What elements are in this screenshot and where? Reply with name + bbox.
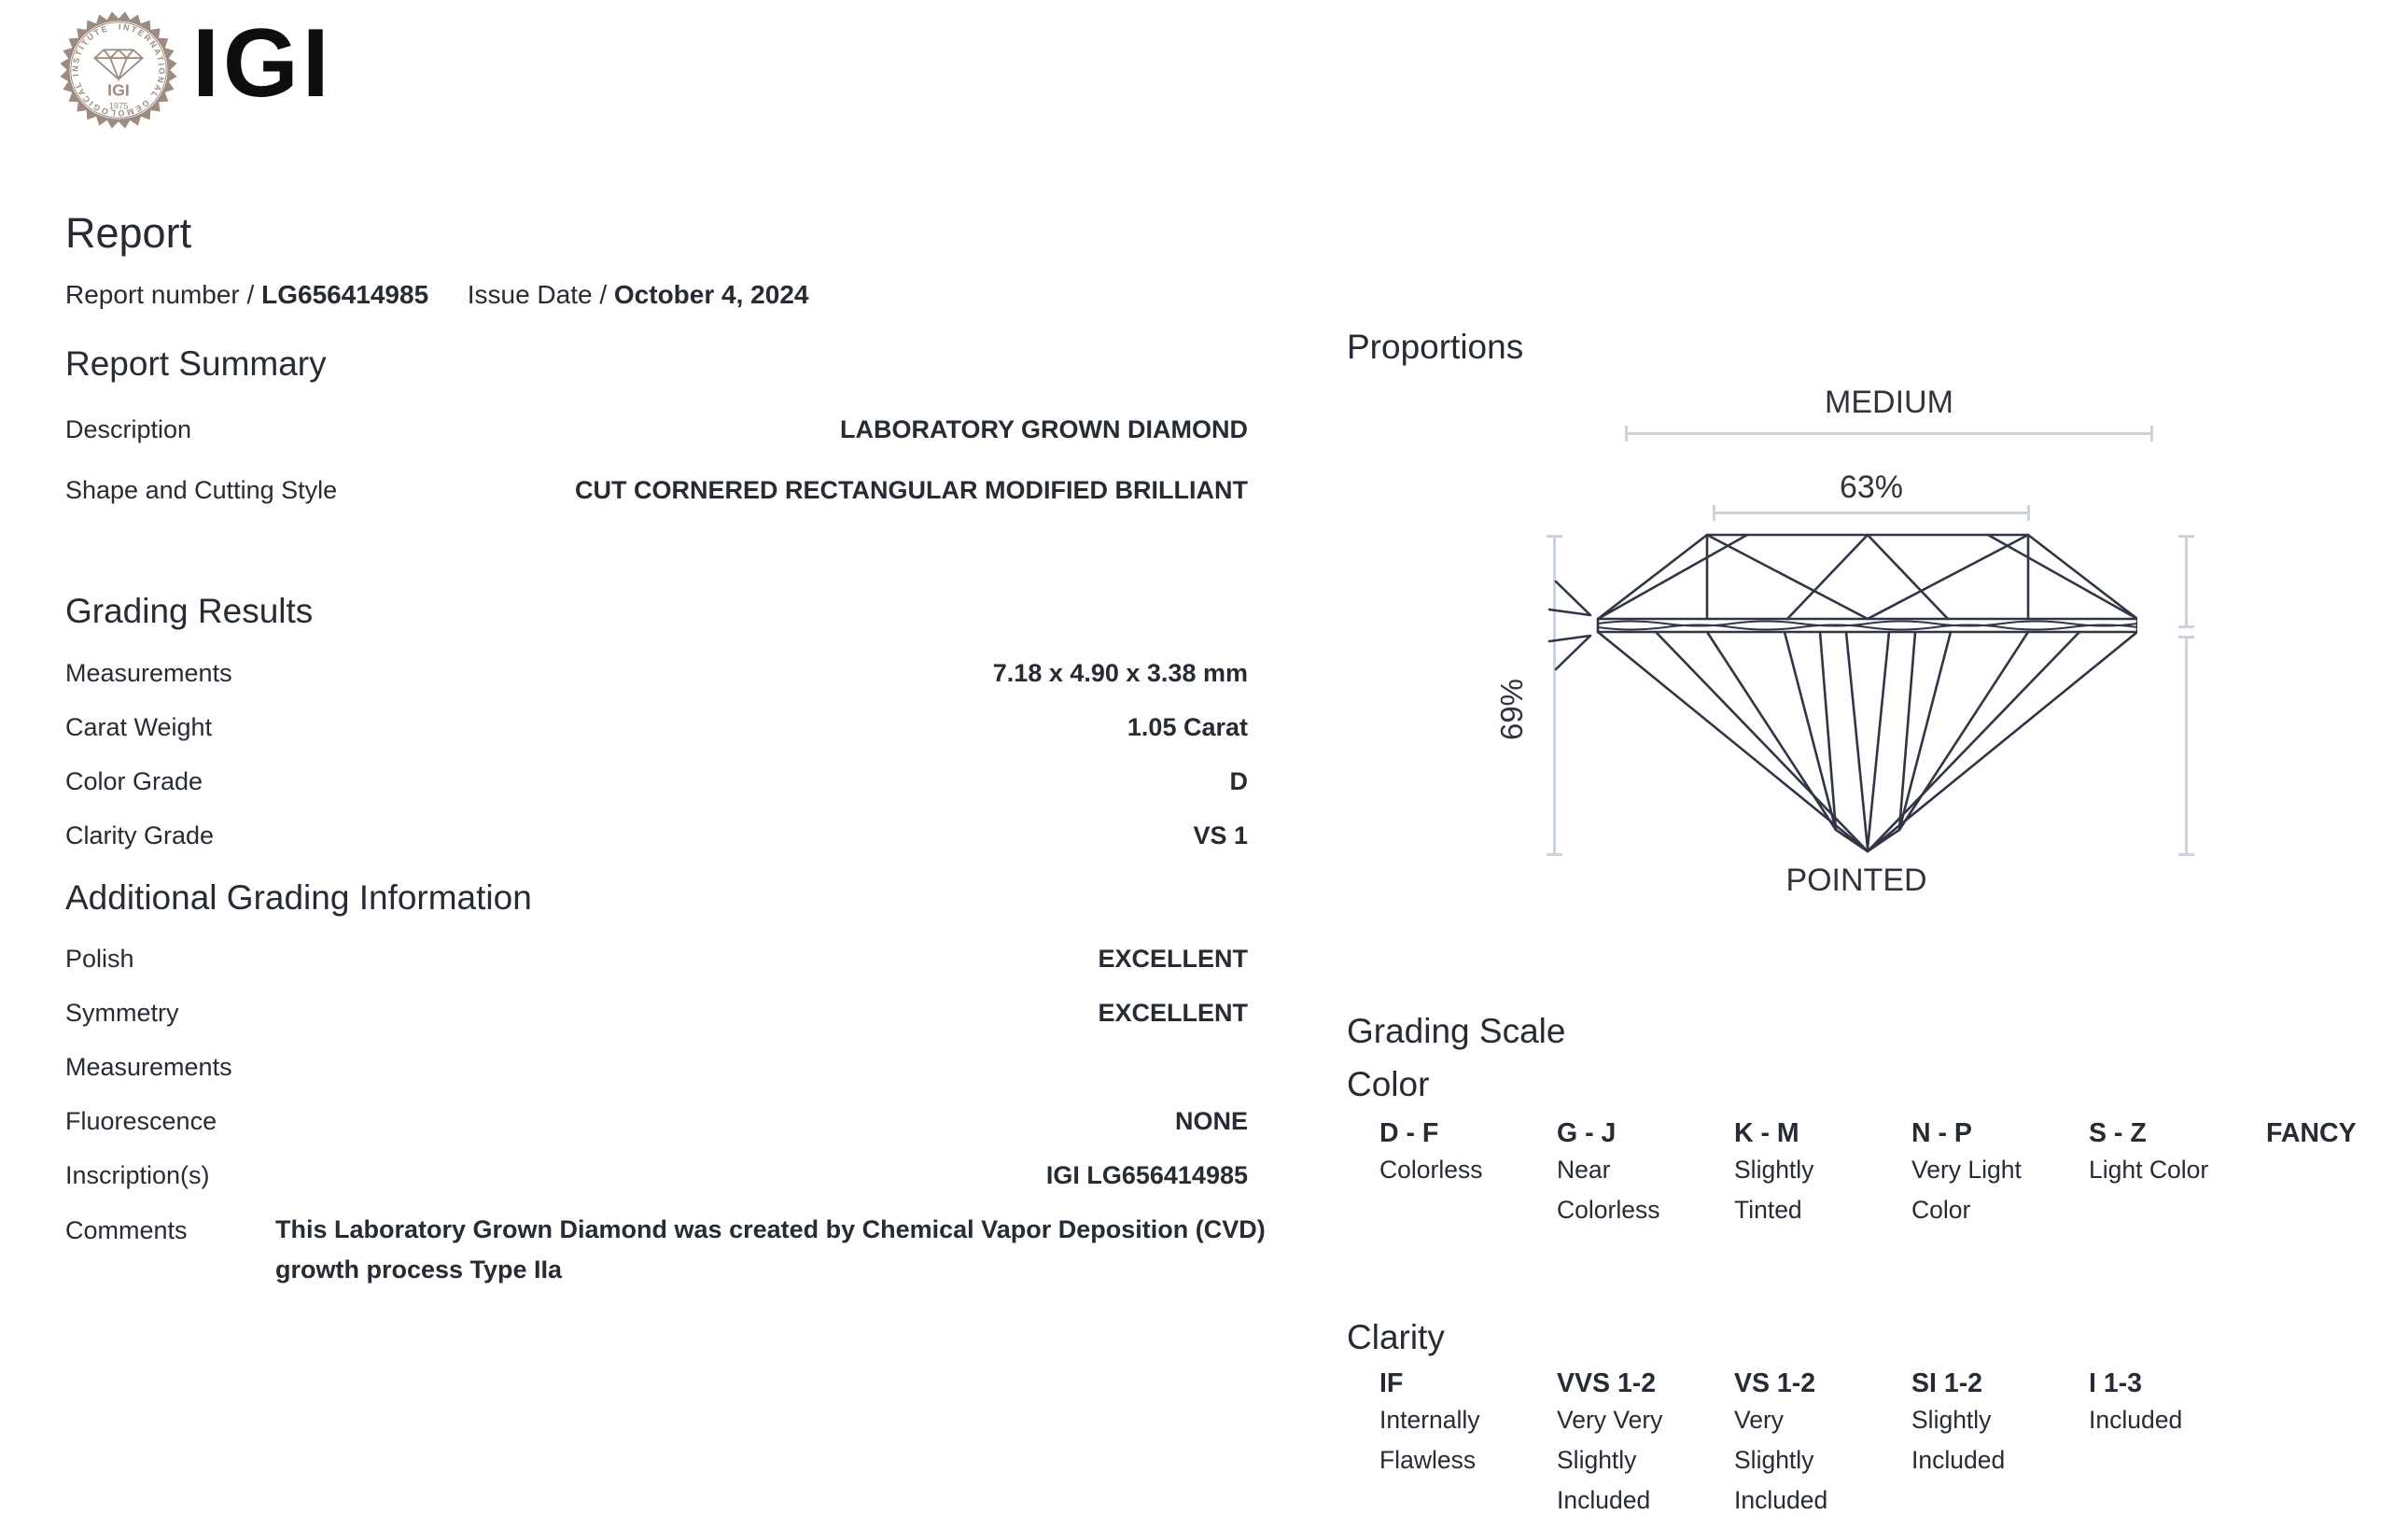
additional-row-fluorescence: Fluorescence NONE bbox=[65, 1104, 1248, 1138]
report-summary-heading: Report Summary bbox=[65, 344, 327, 385]
color-scale-item: G - J Near Colorless bbox=[1557, 1118, 1734, 1230]
page-title: Report bbox=[65, 209, 191, 258]
clarity-scale-grid: IF Internally Flawless VVS 1-2 Very Very… bbox=[1379, 1368, 2266, 1521]
clarity-scale-item: SI 1-2 Slightly Included bbox=[1911, 1368, 2089, 1521]
svg-text:IGI: IGI bbox=[107, 81, 130, 100]
color-scale-item: K - M Slightly Tinted bbox=[1734, 1118, 1911, 1230]
color-scale-item: S - Z Light Color bbox=[2089, 1118, 2266, 1230]
clarity-scale-item: VS 1-2 Very Slightly Included bbox=[1734, 1368, 1911, 1521]
report-meta: Report number / LG656414985 Issue Date /… bbox=[65, 280, 808, 310]
grading-results-heading: Grading Results bbox=[65, 591, 313, 632]
color-scale-grid: D - F Colorless G - J Near Colorless K -… bbox=[1379, 1118, 2408, 1230]
results-row-carat: Carat Weight 1.05 Carat bbox=[65, 710, 1248, 744]
culet-label: POINTED bbox=[1716, 863, 1996, 899]
girdle-measure-line bbox=[1625, 432, 2153, 435]
additional-row-inscription: Inscription(s) IGI LG656414985 bbox=[65, 1158, 1248, 1192]
proportions-heading: Proportions bbox=[1347, 327, 1523, 368]
svg-text:1975: 1975 bbox=[109, 101, 129, 110]
additional-grading-heading: Additional Grading Information bbox=[65, 877, 532, 919]
summary-row-shape: Shape and Cutting Style CUT CORNERED REC… bbox=[65, 473, 1248, 507]
crown-measure-line bbox=[2185, 535, 2188, 628]
comments-text: This Laboratory Grown Diamond was create… bbox=[275, 1210, 1279, 1290]
issue-date: October 4, 2024 bbox=[614, 280, 809, 309]
report-number-label: Report number / bbox=[65, 280, 254, 309]
igi-report-page: INTERNATIONAL GEMOLOGICAL INSTITUTE IGI … bbox=[0, 0, 2408, 1529]
color-scale-item: N - P Very Light Color bbox=[1911, 1118, 2089, 1230]
igi-wordmark: IGI bbox=[192, 13, 333, 115]
comments-label: Comments bbox=[65, 1216, 188, 1245]
summary-row-description: Description LABORATORY GROWN DIAMOND bbox=[65, 413, 1248, 446]
color-scale-heading: Color bbox=[1347, 1064, 1429, 1105]
table-measure-line bbox=[1713, 512, 2030, 514]
igi-seal-icon: INTERNATIONAL GEMOLOGICAL INSTITUTE IGI … bbox=[58, 9, 179, 131]
results-row-color: Color Grade D bbox=[65, 764, 1248, 798]
clarity-scale-item: IF Internally Flawless bbox=[1379, 1368, 1557, 1521]
clarity-scale-heading: Clarity bbox=[1347, 1317, 1445, 1358]
clarity-scale-item: I 1-3 Included bbox=[2089, 1368, 2266, 1521]
results-row-measurements: Measurements 7.18 x 4.90 x 3.38 mm bbox=[65, 656, 1248, 690]
additional-row-symmetry: Symmetry EXCELLENT bbox=[65, 996, 1248, 1030]
table-percent-label: 63% bbox=[1713, 470, 2030, 506]
grading-scale-heading: Grading Scale bbox=[1347, 1011, 1565, 1052]
color-scale-item: D - F Colorless bbox=[1379, 1118, 1557, 1230]
girdle-thickness-label: MEDIUM bbox=[1625, 385, 2153, 421]
clarity-scale-item: VVS 1-2 Very Very Slightly Included bbox=[1557, 1368, 1734, 1521]
additional-row-measurements: Measurements bbox=[65, 1050, 1248, 1084]
issue-date-label: Issue Date / bbox=[468, 280, 607, 309]
color-scale-item: FANCY bbox=[2266, 1118, 2408, 1230]
pavilion-measure-line bbox=[2185, 636, 2188, 856]
diamond-profile-diagram bbox=[1505, 533, 2137, 854]
report-number: LG656414985 bbox=[261, 280, 428, 309]
additional-row-polish: Polish EXCELLENT bbox=[65, 942, 1248, 975]
results-row-clarity: Clarity Grade VS 1 bbox=[65, 819, 1248, 852]
